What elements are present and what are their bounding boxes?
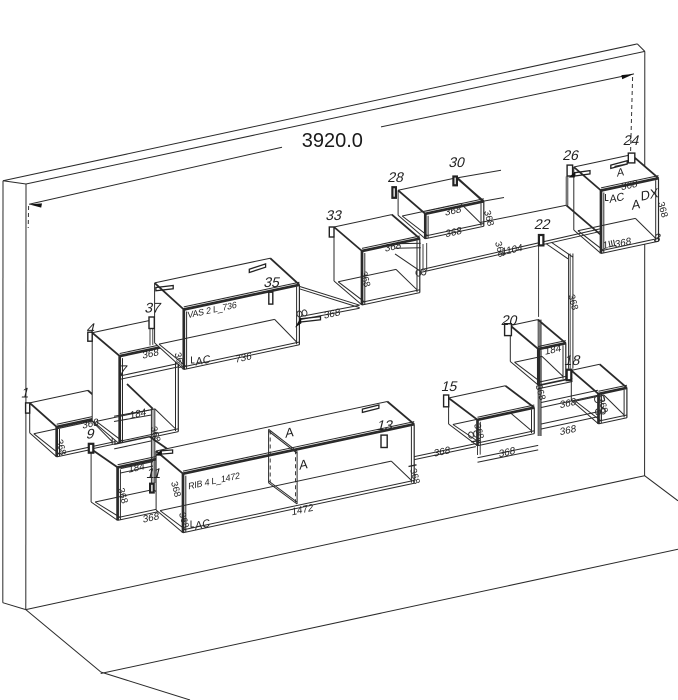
svg-text:A: A — [632, 196, 641, 213]
svg-text:A: A — [617, 166, 625, 180]
svg-text:1: 1 — [603, 240, 609, 252]
svg-text:3920.0: 3920.0 — [302, 130, 363, 152]
svg-text:A: A — [299, 456, 308, 473]
svg-text:A: A — [285, 424, 294, 441]
